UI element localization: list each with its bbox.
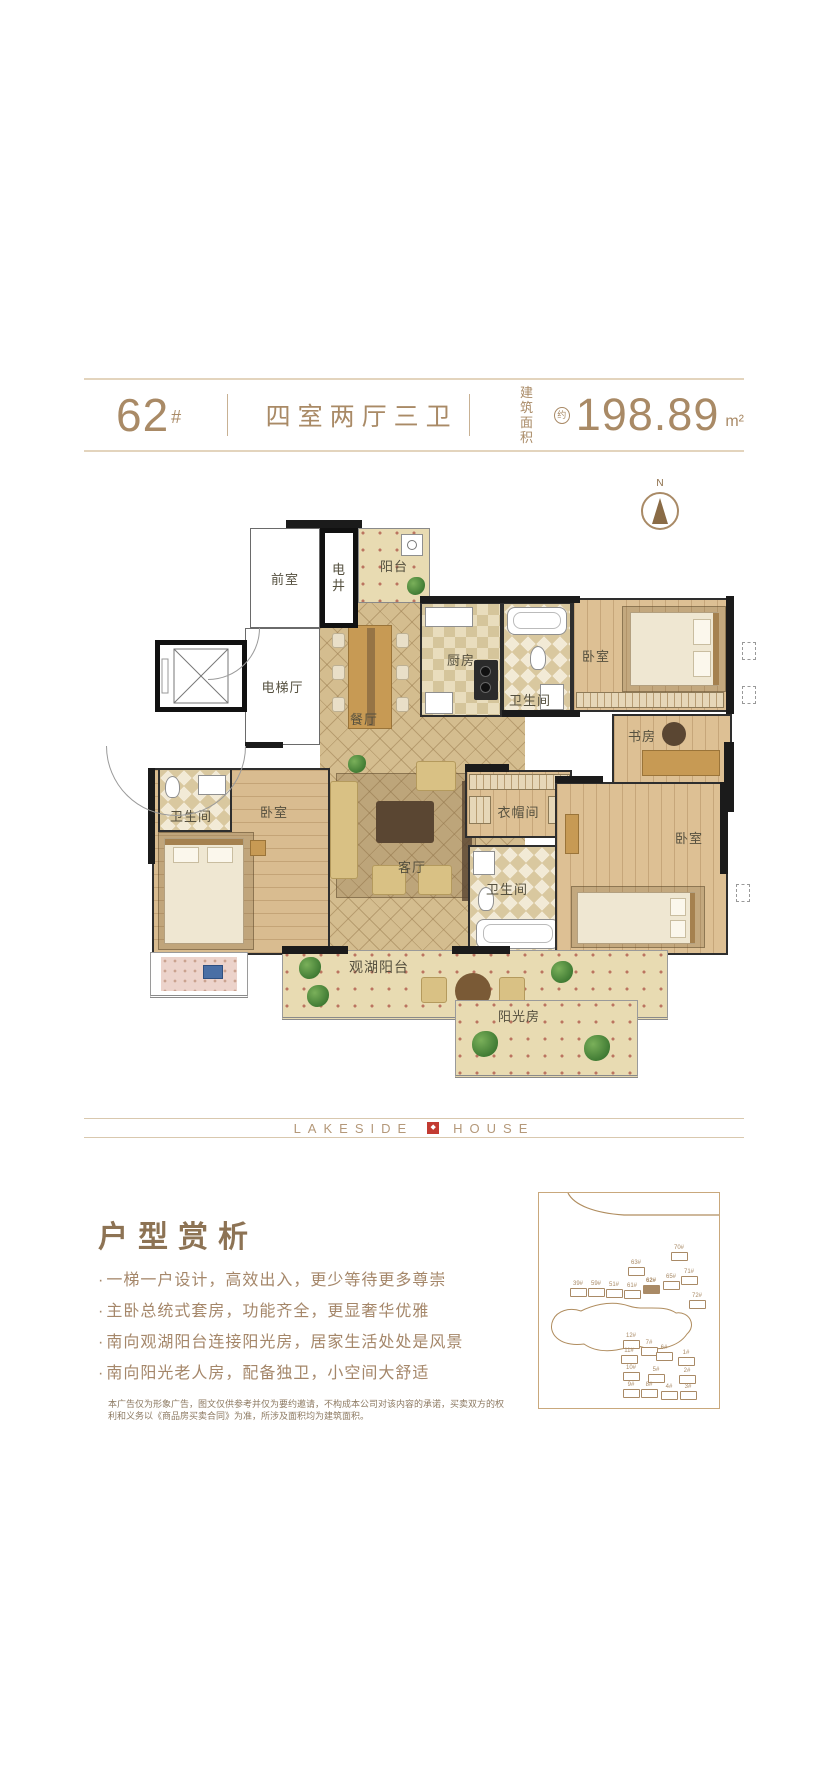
dining-chair (396, 697, 409, 712)
site-map-building-59: 59# (587, 1281, 605, 1297)
desk (642, 750, 720, 776)
sofa (330, 781, 358, 879)
kitchen-counter (425, 692, 453, 714)
site-map-building-65: 65# (662, 1274, 680, 1290)
wall-segment (465, 764, 509, 772)
wardrobe (576, 692, 724, 708)
patio-chair (421, 977, 447, 1003)
room-bathroom-center: 卫生间 (468, 845, 565, 955)
nightstand (250, 840, 266, 856)
site-map-building-63: 63# (627, 1260, 645, 1276)
dining-chair (332, 633, 345, 648)
wall-segment (720, 782, 728, 874)
brand-divider: LAKESIDE ◆ HOUSE (84, 1118, 744, 1138)
balcony-rug (161, 957, 237, 991)
analysis-bullet: ·南向观湖阳台连接阳光房，居家生活处处是风景 (98, 1334, 538, 1352)
plant (472, 1031, 498, 1057)
room-sunroom: 阳光房 (455, 1000, 638, 1078)
room-bedroom-southeast: 卧室 (555, 782, 728, 955)
room-label-study: 书房 (628, 726, 656, 745)
bathtub (507, 607, 567, 635)
analysis-bullets: ·一梯一户设计，高效出入，更少等待更多尊崇·主卧总统式套房，功能齐全，更显奢华优… (98, 1272, 538, 1383)
armchair (416, 761, 456, 791)
brand-seal-icon: ◆ (427, 1122, 439, 1134)
room-label-dining: 餐厅 (350, 709, 378, 728)
site-map-building-11: 11# (620, 1348, 638, 1364)
site-map-building-61: 61# (623, 1283, 641, 1299)
bed (577, 892, 695, 944)
wall-segment (420, 596, 580, 603)
site-map-building-12: 12# (622, 1333, 640, 1349)
analysis-title: 户型赏析 (98, 1212, 538, 1256)
dresser (565, 814, 579, 854)
room-label-bathroom-center: 卫生间 (486, 879, 528, 898)
stove (474, 660, 498, 700)
dining-chair (396, 665, 409, 680)
analysis-section: 户型赏析 ·一梯一户设计，高效出入，更少等待更多尊崇·主卧总统式套房，功能齐全，… (98, 1212, 538, 1383)
coffee-table (376, 801, 434, 843)
bed (630, 612, 718, 686)
room-label-cloakroom: 衣帽间 (497, 802, 539, 821)
room-label-bedroom-west: 卧室 (260, 802, 288, 821)
door-arc (106, 746, 176, 816)
header-divider (469, 394, 470, 436)
wall-segment (555, 776, 603, 783)
site-map-building-71: 71# (680, 1269, 698, 1285)
wall-segment (286, 520, 362, 528)
room-label-lakeview-balcony: 观湖阳台 (349, 957, 409, 977)
towels (203, 965, 223, 979)
site-map-building-4: 4# (660, 1384, 678, 1400)
area-value: 198.89 (576, 389, 720, 441)
header-divider (227, 394, 228, 436)
site-map-building-3: 3# (679, 1384, 697, 1400)
building-number: 62 # (116, 385, 181, 445)
bathtub (476, 919, 560, 949)
site-map-building-39: 39# (569, 1281, 587, 1297)
site-map-building-5: 5# (647, 1367, 665, 1383)
room-label-kitchen: 厨房 (447, 650, 475, 669)
ac-platform (742, 642, 756, 660)
plant (551, 961, 573, 983)
wall-segment (245, 742, 283, 748)
ac-platform (742, 686, 756, 704)
wall-segment (282, 946, 348, 954)
plant (348, 755, 366, 773)
area-label-top: 建筑 (520, 385, 546, 415)
compass-needle-icon (652, 498, 668, 524)
compass-north-label: N (638, 478, 682, 489)
wardrobe (469, 796, 491, 824)
building-number-hash: # (171, 407, 181, 428)
site-map-building-8: 8# (640, 1382, 658, 1398)
room-label-bedroom-southeast: 卧室 (675, 828, 703, 847)
room-label-living: 客厅 (398, 857, 426, 876)
site-map-buildings: 39#59#51#61#63#62#65#71#70#72#12#7#6#1#1… (539, 1193, 719, 1408)
area-label-bottom: 面积 (520, 415, 546, 445)
room-label-bedroom-northeast: 卧室 (582, 646, 610, 665)
room-kitchen: 厨房 (420, 602, 502, 717)
plan-header: 62 # 四室两厅三卫 建筑 面积 约 198.89 m² (84, 378, 744, 452)
layout-type: 四室两厅三卫 (254, 397, 469, 433)
west-balcony (150, 952, 248, 998)
analysis-bullet: ·南向阳光老人房，配备独卫，小空间大舒适 (98, 1365, 538, 1383)
toilet (530, 646, 546, 670)
room-label-antechamber: 前室 (271, 569, 299, 588)
site-map-building-62: 62# (642, 1278, 660, 1294)
floor-plan: 餐厅 客厅 电梯厅 前室 (90, 450, 780, 1090)
kitchen-sink (425, 607, 473, 627)
site-map-building-1: 1# (677, 1350, 695, 1366)
analysis-bullet: ·主卧总统式套房，功能齐全，更显奢华优雅 (98, 1303, 538, 1321)
bathroom-sink (473, 851, 495, 875)
room-label-sunroom: 阳光房 (498, 1006, 540, 1025)
globe (662, 722, 686, 746)
plant (584, 1035, 610, 1061)
area-unit: m² (725, 413, 744, 431)
plant (307, 985, 329, 1007)
site-map-building-51: 51# (605, 1282, 623, 1298)
dining-chair (332, 697, 345, 712)
room-antechamber: 前室 (250, 528, 320, 628)
building-number-value: 62 (116, 385, 169, 445)
compass: N (638, 478, 682, 538)
room-label-north-balcony: 阳台 (380, 556, 408, 575)
site-map-building-9: 9# (622, 1382, 640, 1398)
room-label-utility-shaft: 电井 (331, 562, 347, 594)
dining-chair (332, 665, 345, 680)
room-utility-shaft: 电井 (320, 528, 358, 628)
ac-platform (736, 884, 750, 902)
site-map-building-10: 10# (622, 1365, 640, 1381)
plant (407, 577, 425, 595)
analysis-bullet: ·一梯一户设计，高效出入，更少等待更多尊崇 (98, 1272, 538, 1290)
dining-chair (396, 633, 409, 648)
brand-left: LAKESIDE (294, 1121, 414, 1136)
area-approx-badge: 约 (554, 407, 570, 424)
room-label-elevator-hall: 电梯厅 (261, 677, 303, 696)
wall-segment (502, 710, 580, 717)
site-map-building-70: 70# (670, 1245, 688, 1261)
wall-segment (452, 946, 510, 954)
bed (164, 838, 244, 944)
area-info: 建筑 面积 约 198.89 m² (520, 385, 744, 445)
room-bedroom-northeast: 卧室 (572, 598, 728, 712)
site-map-building-2: 2# (678, 1368, 696, 1384)
area-label: 建筑 面积 (520, 385, 546, 445)
site-map-building-72: 72# (688, 1293, 706, 1309)
site-map-building-6: 6# (655, 1345, 673, 1361)
flyer-page: 62 # 四室两厅三卫 建筑 面积 约 198.89 m² (0, 0, 828, 1792)
brand-right: HOUSE (453, 1121, 534, 1136)
disclaimer: 本广告仅为形象广告，图文仅供参考并仅为要约邀请，不构成本公司对该内容的承诺，买卖… (108, 1398, 508, 1422)
room-label-bathroom-north: 卫生间 (509, 690, 551, 709)
washing-machine (401, 534, 423, 556)
plant (299, 957, 321, 979)
room-bathroom-north: 卫生间 (502, 602, 572, 717)
site-map: 39#59#51#61#63#62#65#71#70#72#12#7#6#1#1… (538, 1192, 720, 1409)
room-north-balcony: 阳台 (358, 528, 430, 603)
wall-segment (726, 596, 734, 714)
